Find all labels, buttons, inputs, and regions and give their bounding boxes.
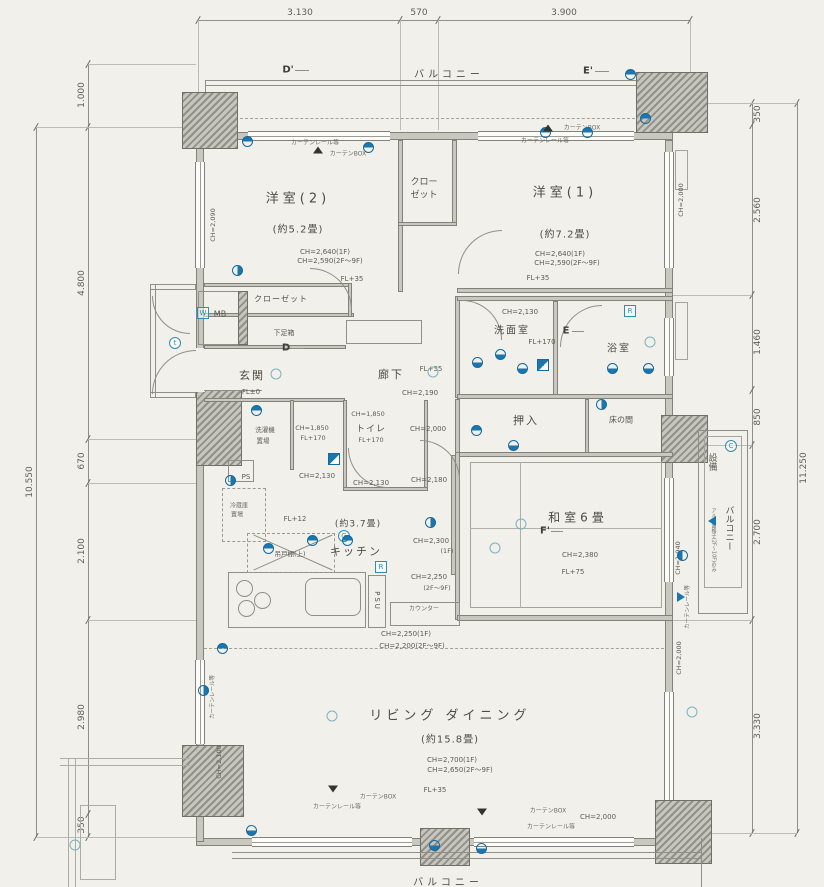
pier-top-left xyxy=(182,92,238,149)
kitchen-ch-4b: (1F) xyxy=(441,547,454,555)
kitchen-sink xyxy=(305,578,361,616)
washroom-ch: CH=2,130 xyxy=(502,308,538,316)
curtain-mark-triangle xyxy=(328,786,338,793)
electrical-symbol-icon xyxy=(677,550,688,561)
section-marker-e: E xyxy=(563,326,570,337)
partition xyxy=(457,394,673,399)
dim-right-total: 11.250 xyxy=(799,452,809,484)
window-bath-side xyxy=(664,318,674,376)
laundry-label-2: 置場 xyxy=(257,435,270,445)
washitsu-fl: FL+75 xyxy=(562,568,585,576)
marker-leader xyxy=(595,71,609,72)
extension-line xyxy=(88,439,196,440)
porch-wall xyxy=(150,284,156,398)
curtain-mark-triangle xyxy=(313,147,323,154)
electrical-symbol-icon xyxy=(640,113,651,124)
living-fl: FL+35 xyxy=(424,786,447,794)
bedroom1-fl: FL+35 xyxy=(527,274,550,282)
curtain-mark-triangle xyxy=(477,809,487,816)
fridge-label-2: 置場 xyxy=(231,510,243,519)
kitchen-size: (約3.7畳) xyxy=(335,517,381,530)
light-symbol-icon xyxy=(645,337,656,348)
marker-leader xyxy=(551,531,563,532)
extension-line xyxy=(400,20,401,130)
dim-left-5: 2.980 xyxy=(77,704,87,730)
electrical-symbol-icon xyxy=(217,643,228,654)
living-bottom-ch: CH=2,000 xyxy=(580,813,616,821)
porch-door-arc xyxy=(152,296,190,334)
dim-line-left-total xyxy=(36,127,37,837)
section-marker-f: F' xyxy=(540,526,550,537)
tokonoma-label: 床の間 xyxy=(609,415,633,426)
tatami-line xyxy=(520,462,521,608)
extension-line xyxy=(673,295,752,296)
fridge-label-1: 冷蔵庫 xyxy=(230,501,248,510)
partition xyxy=(204,398,345,402)
curtain-rail-note-left: カーテンレール等 xyxy=(208,675,216,719)
bedroom2-side-ch: CH=2,090 xyxy=(209,208,217,241)
toilet-fl: FL+170 xyxy=(358,436,383,444)
closet2-label: クローゼット xyxy=(254,294,308,305)
exterior-line xyxy=(68,758,69,887)
shoe-cabinet xyxy=(346,320,422,344)
partition xyxy=(457,288,673,293)
bedroom2-fl: FL+35 xyxy=(341,275,364,283)
shoe-cabinet-label: 下足箱 xyxy=(274,328,295,338)
bath-label: 浴室 xyxy=(607,340,631,355)
partition xyxy=(398,140,403,292)
pier-bottom-right xyxy=(655,800,712,864)
electrical-symbol-icon xyxy=(342,535,353,546)
balcony-bottom-label: バルコニー xyxy=(413,874,483,887)
exterior-line xyxy=(60,765,190,766)
bedroom1-label: 洋室(1) xyxy=(533,182,597,201)
dim-top-1: 3.130 xyxy=(287,8,313,18)
laundry-fl: FL+170 xyxy=(300,434,325,442)
bedroom2-size: (約5.2畳) xyxy=(273,221,324,236)
toilet-ch: CH=1,850 xyxy=(351,410,384,418)
r-badge-bath: R xyxy=(624,305,636,317)
light-symbol-icon xyxy=(428,367,439,378)
bedroom1-size: (約7.2畳) xyxy=(540,226,591,241)
washroom-fl: FL+170 xyxy=(528,338,555,346)
living-left-ch: CH=2,100 xyxy=(215,745,223,778)
partition xyxy=(455,399,460,457)
extension-line xyxy=(36,127,196,128)
curtain-box-note-1: カーテンBOX xyxy=(330,149,366,158)
electrical-symbol-icon xyxy=(225,475,236,486)
dim-right-3: 1.460 xyxy=(753,329,763,355)
electrical-symbol-icon xyxy=(495,349,506,360)
curtain-box-note-3: カーテンBOX xyxy=(360,792,396,801)
kitchen-label: キッチン xyxy=(330,543,382,559)
exterior-line xyxy=(60,758,190,759)
dim-line-top xyxy=(198,20,690,21)
balcony-rail xyxy=(205,85,689,86)
partition xyxy=(398,222,457,226)
hall-nook-ch: CH=2,000 xyxy=(410,425,446,433)
switch-panel-icon xyxy=(328,453,340,465)
kitchen-ch-5b: (2F〜9F) xyxy=(423,582,450,592)
electrical-symbol-icon xyxy=(471,425,482,436)
soffit-ch-1: CH=2,250(1F) xyxy=(381,630,431,638)
marker-leader xyxy=(292,348,304,349)
genkan-fl: FL±0 xyxy=(242,388,260,396)
window-living-1 xyxy=(252,837,412,847)
entrance-door-arc xyxy=(152,350,196,394)
extension-line xyxy=(88,64,196,65)
balcony-bottom-rail xyxy=(232,852,702,853)
electrical-symbol-icon xyxy=(508,440,519,451)
extension-line xyxy=(36,837,196,838)
electrical-symbol-icon xyxy=(198,685,209,696)
partition xyxy=(457,452,673,457)
entrance-door-gap xyxy=(195,348,205,392)
curtain-rail-note-4: カーテンレール等 xyxy=(527,822,575,831)
extension-line xyxy=(88,483,196,484)
switch-panel-icon xyxy=(537,359,549,371)
dim-right-6: 3.330 xyxy=(753,713,763,739)
kitchen-fl: FL+12 xyxy=(284,515,307,523)
partition-laundry xyxy=(290,400,294,470)
partition-washitsu-south xyxy=(457,615,673,621)
partition xyxy=(204,345,346,349)
electrical-symbol-icon xyxy=(517,363,528,374)
window-bedroom2-side xyxy=(195,162,205,268)
closet-top-label-1: クロー xyxy=(410,175,437,188)
living-right-ch: CH=2,000 xyxy=(675,641,683,674)
meter-box-shaft xyxy=(238,291,248,345)
partition xyxy=(455,296,460,398)
pier-bottom-mid xyxy=(420,828,470,866)
window-bedroom1-side xyxy=(664,152,674,268)
laundry-ch: CH=1,850 xyxy=(295,424,328,432)
partition xyxy=(452,140,457,224)
bedroom1-ch1: CH=2,640(1F) xyxy=(535,250,585,258)
counter-label: カウンター xyxy=(409,604,439,613)
electrical-symbol-icon xyxy=(476,843,487,854)
section-marker-e-prime: E' xyxy=(583,66,593,77)
washitsu-door-arc xyxy=(420,440,460,480)
electrical-symbol-icon xyxy=(607,363,618,374)
partition xyxy=(585,399,589,454)
marker-leader xyxy=(295,70,309,71)
electrical-symbol-icon xyxy=(625,69,636,80)
living-ch2: CH=2,650(2F〜9F) xyxy=(427,765,492,775)
window-living-2 xyxy=(474,837,634,847)
dim-left-total: 10.550 xyxy=(25,466,35,498)
light-symbol-icon xyxy=(490,543,501,554)
curtain-box-note-4: カーテンBOX xyxy=(530,806,566,815)
toilet-label: トイレ xyxy=(356,422,386,435)
hall-label: 廊下 xyxy=(378,366,404,382)
exterior-structure xyxy=(80,805,116,880)
light-symbol-icon xyxy=(687,707,698,718)
kitchen-ch-3: CH=2,180 xyxy=(411,476,447,484)
dim-left-4: 2.100 xyxy=(77,538,87,564)
balcony-bottom-rail-end xyxy=(701,838,702,887)
window-living-left xyxy=(195,660,205,744)
equip-balcony-title: 設備 xyxy=(706,453,719,471)
meter-box-label: MB xyxy=(214,310,226,319)
marker-leader xyxy=(572,331,584,332)
electrical-symbol-icon xyxy=(425,517,436,528)
soffit-ch-2: CH=2,200(2F〜9F) xyxy=(379,641,444,651)
dim-top-3: 3.900 xyxy=(551,8,577,18)
vent-arrow-icon xyxy=(708,516,716,526)
balcony-floor-line xyxy=(240,118,635,119)
electrical-symbol-icon xyxy=(363,142,374,153)
electrical-symbol-icon xyxy=(582,127,593,138)
genkan-label: 玄関 xyxy=(239,367,265,383)
dim-right-5: 2.700 xyxy=(753,519,763,545)
dim-left-1: 1.000 xyxy=(77,82,87,108)
stove-burner xyxy=(236,580,253,597)
cupboard-label: 吊戸棚(上) xyxy=(274,548,305,558)
floor-plan-sheet: 3.130 570 3.900 10.550 1.000 4.800 670 2… xyxy=(0,0,824,887)
electrical-symbol-icon xyxy=(246,825,257,836)
curtain-rail-note-3: カーテンレール等 xyxy=(313,802,361,811)
bedroom1-ch2: CH=2,590(2F〜9F) xyxy=(534,258,599,268)
electrical-symbol-icon xyxy=(596,399,607,410)
dim-top-2: 570 xyxy=(410,8,427,18)
bedroom2-ch2: CH=2,590(2F〜9F) xyxy=(297,256,362,266)
hall-ch: CH=2,190 xyxy=(402,389,438,397)
kitchen-ch-4: CH=2,300 xyxy=(413,537,449,545)
electrical-symbol-icon xyxy=(307,535,318,546)
porch-wall xyxy=(150,284,196,290)
porch-wall xyxy=(150,392,196,398)
partition xyxy=(553,301,558,396)
equip-balcony-name: バルコニー xyxy=(723,506,736,551)
living-ch1: CH=2,700(1F) xyxy=(427,756,477,764)
window-living-right xyxy=(664,692,674,800)
t-badge: t xyxy=(169,337,181,349)
dim-line-right-total xyxy=(797,103,798,833)
kitchen-ch-5: CH=2,250 xyxy=(411,573,447,581)
tatami-line xyxy=(470,528,662,529)
electrical-symbol-icon xyxy=(263,543,274,554)
psu-label: PSU xyxy=(373,591,381,611)
light-symbol-icon xyxy=(327,711,338,722)
electrical-symbol-icon xyxy=(429,840,440,851)
bedroom1-side-ch: CH=2,000 xyxy=(677,183,685,216)
dim-left-2: 4.800 xyxy=(77,270,87,296)
bedroom2-label: 洋室(2) xyxy=(266,188,330,207)
equip-balcony-circle-icon: C xyxy=(725,440,737,452)
ps-label: PS xyxy=(242,473,251,481)
stove-burner xyxy=(254,592,271,609)
vent-arrow-icon xyxy=(677,592,685,602)
dim-right-4: 850 xyxy=(753,408,763,425)
exterior-line xyxy=(75,758,76,887)
pier-bottom-left xyxy=(182,745,244,817)
balcony-bottom-rail xyxy=(232,858,702,859)
dim-line-left xyxy=(88,64,89,837)
closet-top-label-2: ゼット xyxy=(410,188,437,201)
dim-right-2: 2.560 xyxy=(753,197,763,223)
extension-line xyxy=(690,20,691,72)
electrical-symbol-icon xyxy=(232,265,243,276)
section-marker-d-prime: D' xyxy=(282,65,293,76)
electrical-symbol-icon xyxy=(242,136,253,147)
bedroom1-door-arc xyxy=(458,230,502,274)
kitchen-ch-1: CH=2,130 xyxy=(299,472,335,480)
tatami-border xyxy=(470,462,662,608)
dim-left-3: 670 xyxy=(77,452,87,469)
laundry-label-1: 洗濯機 xyxy=(255,424,275,434)
louver-box xyxy=(675,302,688,360)
genkan-light-icon xyxy=(271,369,282,380)
dim-right-1: 350 xyxy=(753,105,763,122)
light-symbol-icon xyxy=(70,840,81,851)
partition-toilet xyxy=(343,400,347,490)
curtain-rail-note-1: カーテンレール等 xyxy=(291,138,339,147)
electrical-symbol-icon xyxy=(472,357,483,368)
oshiire-label: 押入 xyxy=(513,412,539,428)
washitsu-label: 和室6畳 xyxy=(548,509,608,526)
washroom-label: 洗面室 xyxy=(494,322,530,337)
extension-line xyxy=(88,620,196,621)
extension-line xyxy=(708,103,797,104)
section-marker-d: D xyxy=(282,343,290,354)
electrical-symbol-icon xyxy=(251,405,262,416)
washitsu-ch: CH=2,380 xyxy=(562,551,598,559)
stove-burner xyxy=(238,600,255,617)
bedroom2-ch1: CH=2,640(1F) xyxy=(300,248,350,256)
r-badge-kitchen: R xyxy=(375,561,387,573)
electrical-symbol-icon xyxy=(643,363,654,374)
extension-line xyxy=(198,20,199,92)
balcony-top-label: バルコニー xyxy=(414,66,484,81)
w-badge: W xyxy=(197,307,209,319)
living-size: (約15.8畳) xyxy=(421,731,479,746)
window-washitsu-side xyxy=(664,478,674,582)
curtain-mark-triangle xyxy=(543,125,553,132)
partition xyxy=(457,296,673,301)
living-label: リビング ダイニング xyxy=(369,705,530,724)
light-symbol-icon xyxy=(516,519,527,530)
kitchen-ch-2: CH=2,130 xyxy=(353,479,389,487)
